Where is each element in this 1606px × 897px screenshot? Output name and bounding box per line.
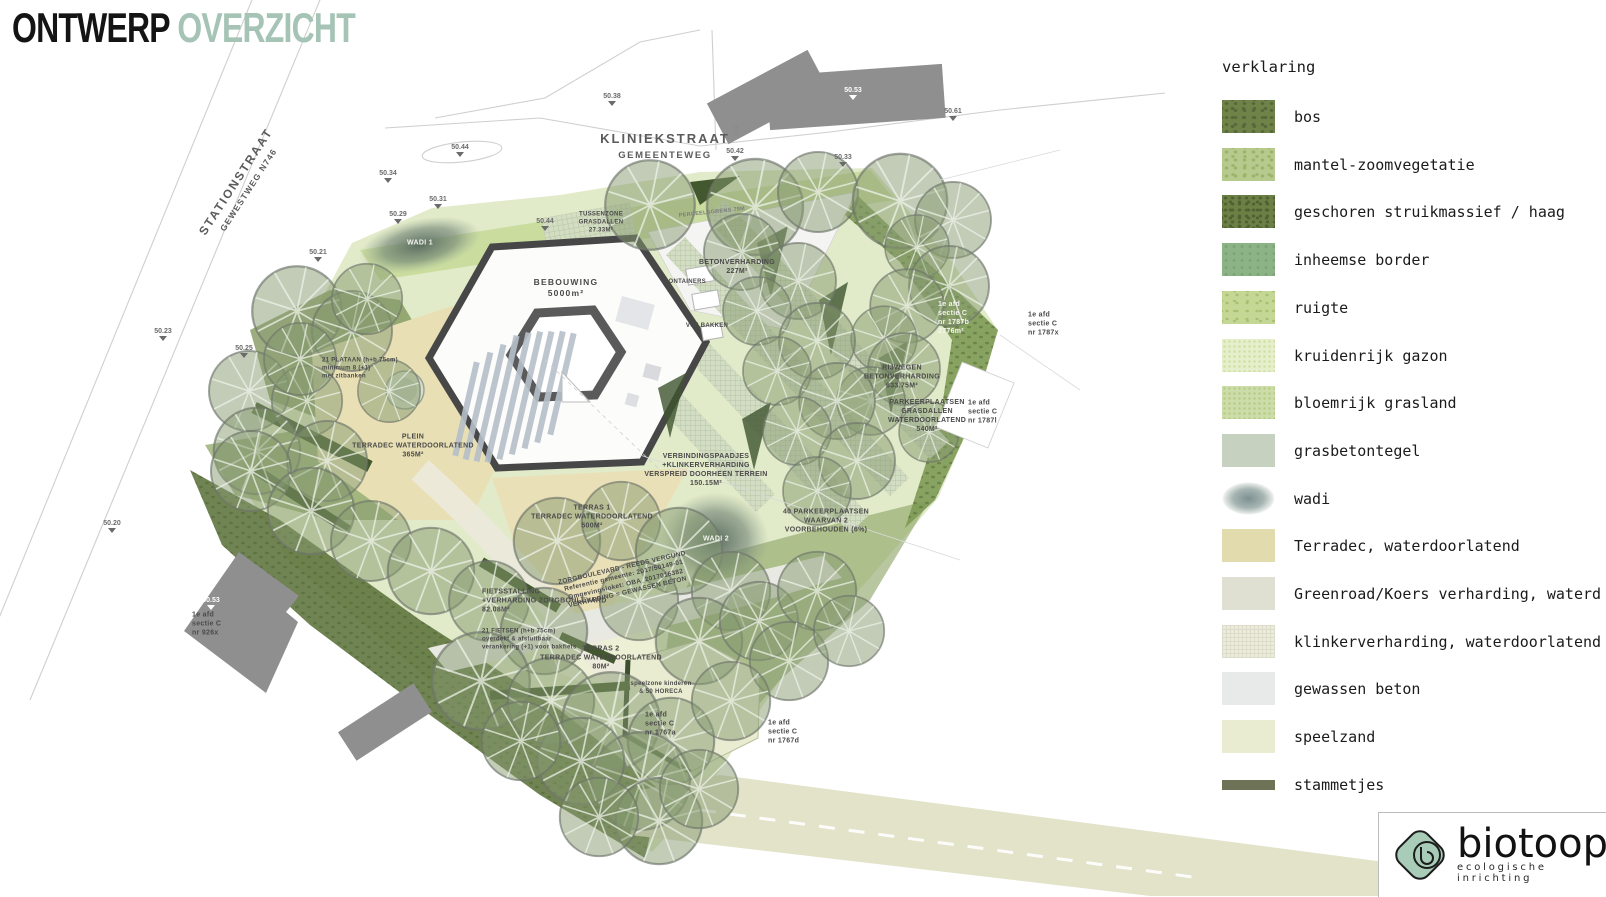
legend-item-label: Terradec, waterdoorlatend [1294,537,1520,555]
legend-item-label: ruigte [1294,299,1348,317]
elevation-marker: 50.53 [195,597,227,610]
marker-triangle-icon [394,219,402,224]
biotoop-logo-icon [1387,822,1453,888]
legend-item-label: gewassen beton [1294,680,1420,698]
marker-triangle-icon [849,95,857,100]
legend-swatch [1222,625,1275,658]
label-verbindingspaadjes: VERBINDINGSPAADJES +KLINKERVERHARDING VE… [644,452,767,488]
marker-triangle-icon [384,178,392,183]
legend-item-terradec: Terradec, waterdoorlatend [1222,529,1606,563]
legend-swatch [1222,672,1275,705]
legend-item-label: wadi [1294,490,1330,508]
marker-triangle-icon [434,204,442,209]
label-dim-607: 607 [730,126,738,137]
legend-item-label: geschoren struikmassief / haag [1294,203,1565,221]
legend-item-geschoren-struikmassief: geschoren struikmassief / haag [1222,195,1606,229]
legend-item-kruidenrijk-gazon: kruidenrijk gazon [1222,339,1606,373]
legend-item-inheemse-border: inheemse border [1222,243,1606,277]
elevation-marker: 50.23 [147,328,179,341]
marker-triangle-icon [159,336,167,341]
legend-swatch [1222,529,1275,562]
legend-swatch [1222,148,1275,181]
elevation-marker: 50.21 [302,249,334,262]
legend-swatch [1222,577,1275,610]
label-plataan: 21 PLATAAN (h+b 75cm) minimum 8 (+1) met… [322,357,398,380]
legend-item-label: klinkerverharding, waterdoorlatend [1294,633,1601,651]
elevation-marker: 50.20 [96,520,128,533]
legend-item-label: inheemse border [1294,251,1429,269]
biotoop-logo: biotoop ecologische inrichting [1378,812,1606,897]
title-black: ONTWERP [12,4,169,51]
legend-item-label: Greenroad/Koers verharding, waterd [1294,585,1601,603]
label-vuilbakken: VUILBAKKEN [686,323,728,331]
elevation-marker: 50.44 [529,218,561,231]
label-parkeerplaatsen-grasdallen: PARKEERPLAATSEN GRASDALLEN WATERDOORLATE… [888,398,966,434]
label-containers: CONTAINERS [664,279,706,287]
label-40-parkeerplaatsen: 40 PARKEERPLAATSEN WAARVAN 2 VOORBEHOUDE… [783,507,869,534]
label-betonverharding: BETONVERHARDING 227M² [699,258,775,276]
legend-item-label: speelzand [1294,728,1375,746]
label-parcel-1787x: 1e afd sectie C nr 1787x [1028,310,1059,337]
label-bebouwing: BEBOUWING 5000m² [534,277,599,299]
marker-triangle-icon [456,152,464,157]
marker-triangle-icon [240,353,248,358]
marker-triangle-icon [839,162,847,167]
legend-swatch [1222,434,1275,467]
elevation-marker: 50.53 [837,87,869,100]
legend-swatch [1222,339,1275,372]
marker-triangle-icon [207,605,215,610]
elevation-marker: 50.61 [937,108,969,121]
label-parcel-1787b: 1e afd sectie C nr 1787b 2776m² [938,300,969,336]
legend-item-wadi: wadi [1222,482,1606,516]
elevation-marker: 50.29 [382,211,414,224]
legend-swatch [1222,195,1275,228]
elevation-marker: 50.42 [719,148,751,161]
legend: verklaring bos mantel-zoomvegetatie gesc… [1222,58,1606,76]
elevation-marker: 50.25 [228,345,260,358]
label-fietsen: 21 FIETSEN (h+b 75cm) overdekt & afsluit… [482,628,577,651]
legend-item-ruigte: ruigte [1222,291,1606,325]
legend-item-label: grasbetontegel [1294,442,1420,460]
legend-swatch [1222,243,1275,276]
label-tussenzone: TUSSENZONE GRASDALLEN 27.33M² [579,211,624,234]
legend-swatch [1222,720,1275,753]
legend-swatch [1222,100,1275,133]
legend-swatch [1222,780,1275,790]
marker-triangle-icon [608,101,616,106]
legend-swatch [1222,386,1275,419]
legend-swatch [1222,482,1275,515]
elevation-marker: 50.44 [444,144,476,157]
label-plein: PLEIN TERRADEC WATERDOORLATEND 365M² [352,432,474,459]
page-title: ONTWERP OVERZICHT [12,4,355,52]
label-wadi-1: WADI 1 [407,238,433,247]
logo-wordmark: biotoop [1457,827,1606,861]
legend-item-bos: bos [1222,100,1606,134]
label-wadi-2: WADI 2 [703,534,729,543]
label-rijwegen: RIJWEGEN BETONVERHARDING 633.75M² [864,363,940,390]
legend-item-label: bos [1294,108,1321,126]
marker-triangle-icon [541,226,549,231]
legend-item-grasbetontegel: grasbetontegel [1222,434,1606,468]
label-parcel-1767a: 1e afd sectie C nr 1767a [645,710,676,737]
legend-item-label: stammetjes [1294,776,1384,794]
legend-item-stammetjes: stammetjes [1222,768,1606,802]
legend-item-label: kruidenrijk gazon [1294,347,1448,365]
legend-item-gewassen-beton: gewassen beton [1222,672,1606,706]
label-parcel-926x: 1e afd sectie C nr 926x [192,610,221,637]
street-name: KLINIEKSTRAAT [585,131,745,146]
legend-heading: verklaring [1222,58,1606,76]
elevation-marker: 50.31 [422,196,454,209]
elevation-marker: 50.33 [827,154,859,167]
elevation-marker: 50.38 [596,93,628,106]
title-accent: OVERZICHT [177,4,355,51]
legend-item-speelzand: speelzand [1222,720,1606,754]
legend-item-mantel-zoomvegetatie: mantel-zoomvegetatie [1222,148,1606,182]
legend-item-label: mantel-zoomvegetatie [1294,156,1475,174]
marker-triangle-icon [731,156,739,161]
marker-triangle-icon [314,257,322,262]
page: { "title": { "black": "ONTWERP", "accent… [0,0,1606,896]
label-terras-1: TERRAS 1 TERRADEC WATERDOORLATEND 500M² [531,503,653,530]
legend-item-klinkerverharding: klinkerverharding, waterdoorlatend [1222,625,1606,659]
elevation-marker: 50.34 [372,170,404,183]
label-parcel-1787l: 1e afd sectie C nr 1787l [968,398,997,425]
legend-swatch [1222,291,1275,324]
label-speelzone: speelzone kinderen & 50 HORECA [630,681,691,697]
legend-item-bloemrijk-grasland: bloemrijk grasland [1222,386,1606,420]
marker-triangle-icon [949,116,957,121]
legend-item-greenroad: Greenroad/Koers verharding, waterd [1222,577,1606,611]
legend-item-label: bloemrijk grasland [1294,394,1457,412]
marker-triangle-icon [108,528,116,533]
label-parcel-1767d: 1e afd sectie C nr 1767d [768,718,799,745]
